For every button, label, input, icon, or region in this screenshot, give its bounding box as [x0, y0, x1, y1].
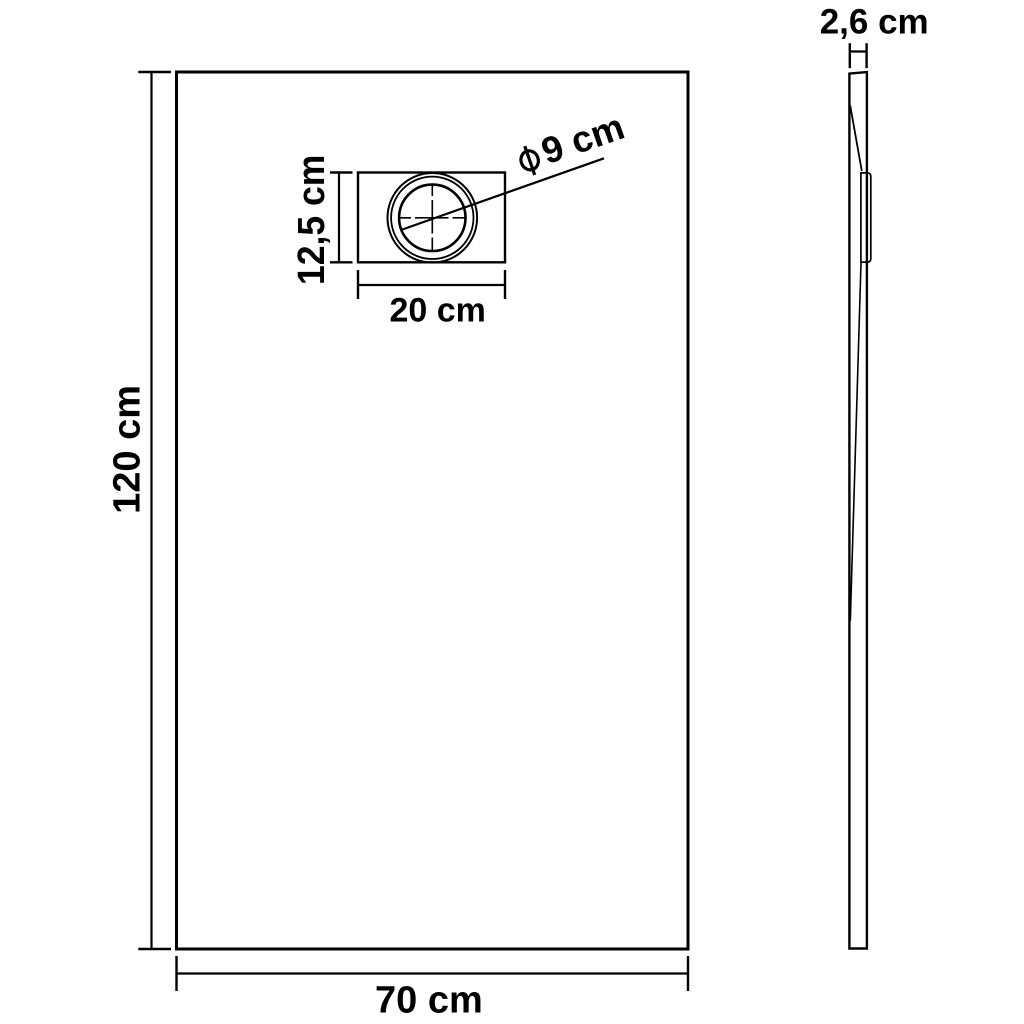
svg-text:2,6 cm: 2,6 cm	[820, 3, 929, 42]
svg-text:12,5 cm: 12,5 cm	[290, 155, 332, 285]
svg-text:20 cm: 20 cm	[389, 291, 485, 329]
svg-text:9 cm: 9 cm	[536, 106, 629, 172]
svg-text:120 cm: 120 cm	[106, 385, 148, 514]
svg-text:70 cm: 70 cm	[375, 979, 483, 1021]
